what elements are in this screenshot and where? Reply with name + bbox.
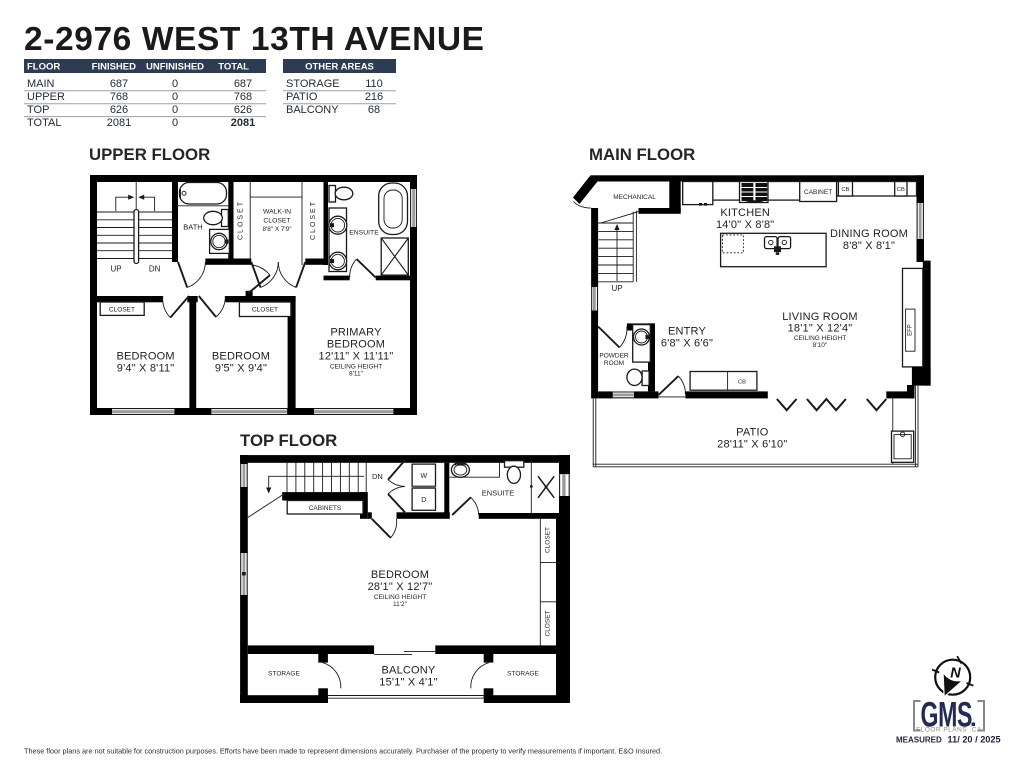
svg-text:9'4" X 8'11": 9'4" X 8'11" xyxy=(117,363,175,375)
svg-text:UPPER FLOOR: UPPER FLOOR xyxy=(89,145,210,164)
svg-text:6'8" X 6'6": 6'8" X 6'6" xyxy=(661,338,713,350)
svg-text:FLOOR: FLOOR xyxy=(27,62,60,73)
svg-text:CABINET: CABINET xyxy=(804,189,832,196)
svg-text:BEDROOM: BEDROOM xyxy=(212,351,270,363)
svg-text:DN: DN xyxy=(372,472,383,481)
svg-text:TOP: TOP xyxy=(27,104,49,116)
svg-text:8'11": 8'11" xyxy=(349,371,364,378)
svg-text:CLOSET: CLOSET xyxy=(263,218,290,225)
svg-text:TOP FLOOR: TOP FLOOR xyxy=(240,431,337,450)
svg-text:0: 0 xyxy=(172,117,178,129)
svg-text:PRIMARY: PRIMARY xyxy=(330,327,382,339)
svg-text:BEDROOM: BEDROOM xyxy=(327,339,385,351)
svg-text:BEDROOM: BEDROOM xyxy=(371,569,429,581)
svg-text:MEASURED: MEASURED xyxy=(896,736,942,745)
svg-text:9'5" X 9'4": 9'5" X 9'4" xyxy=(215,363,267,375)
svg-text:BALCONY: BALCONY xyxy=(382,665,436,677)
svg-text:EFP: EFP xyxy=(908,324,914,336)
svg-text:CB: CB xyxy=(897,187,905,193)
svg-text:110: 110 xyxy=(365,78,383,90)
svg-text:768: 768 xyxy=(234,91,252,103)
svg-text:ENSUITE: ENSUITE xyxy=(482,488,515,497)
svg-text:11'2": 11'2" xyxy=(393,601,408,608)
svg-text:W: W xyxy=(420,473,427,480)
svg-text:2-2976 WEST 13TH AVENUE: 2-2976 WEST 13TH AVENUE xyxy=(24,21,485,58)
svg-text:68: 68 xyxy=(368,104,380,116)
svg-text:CB: CB xyxy=(738,380,746,386)
svg-text:CLOSET: CLOSET xyxy=(252,307,278,314)
svg-text:FINISHED: FINISHED xyxy=(92,62,136,73)
svg-text:15'1" X 4'1": 15'1" X 4'1" xyxy=(379,677,437,689)
svg-text:ENSUITE: ENSUITE xyxy=(349,230,379,237)
svg-text:CEILING HEIGHT: CEILING HEIGHT xyxy=(330,364,382,371)
svg-text:8'10": 8'10" xyxy=(813,342,828,349)
svg-text:UP: UP xyxy=(110,265,121,274)
svg-text:PATIO: PATIO xyxy=(286,91,318,103)
svg-text:DN: DN xyxy=(149,265,161,274)
svg-text:BATH: BATH xyxy=(183,223,202,232)
svg-text:ENTRY: ENTRY xyxy=(668,326,707,338)
svg-text:2081: 2081 xyxy=(107,117,131,129)
svg-text:UNFINISHED: UNFINISHED xyxy=(146,62,204,73)
svg-text:11/ 20 / 2025: 11/ 20 / 2025 xyxy=(948,735,1001,745)
svg-text:CEILING HEIGHT: CEILING HEIGHT xyxy=(374,594,426,601)
svg-text:2081: 2081 xyxy=(231,117,255,129)
svg-text:14'0" X 8'8": 14'0" X 8'8" xyxy=(716,219,774,231)
svg-text:0: 0 xyxy=(172,91,178,103)
svg-text:MAIN FLOOR: MAIN FLOOR xyxy=(589,145,695,164)
svg-text:ROOM: ROOM xyxy=(604,360,624,367)
svg-text:0: 0 xyxy=(172,104,178,116)
svg-text:MAIN: MAIN xyxy=(27,78,55,90)
svg-text:216: 216 xyxy=(365,91,383,103)
svg-text:D: D xyxy=(421,497,426,504)
svg-text:0: 0 xyxy=(172,78,178,90)
svg-text:8'8" X 8'1": 8'8" X 8'1" xyxy=(843,240,895,252)
svg-text:PATIO: PATIO xyxy=(736,427,769,439)
svg-text:18'1" X 12'4": 18'1" X 12'4" xyxy=(788,323,853,335)
svg-text:768: 768 xyxy=(110,91,128,103)
svg-text:28'1" X 12'7": 28'1" X 12'7" xyxy=(368,581,433,593)
svg-text:BALCONY: BALCONY xyxy=(286,104,339,116)
svg-text:CABINETS: CABINETS xyxy=(309,505,342,512)
svg-text:CLOSET: CLOSET xyxy=(310,200,317,240)
svg-text:CB: CB xyxy=(841,187,849,193)
svg-text:626: 626 xyxy=(234,104,252,116)
svg-text:UP: UP xyxy=(611,284,622,293)
svg-text:687: 687 xyxy=(110,78,128,90)
svg-text:UPPER: UPPER xyxy=(27,91,65,103)
svg-text:POWDER: POWDER xyxy=(599,353,629,360)
svg-text:28'11" X 6'10": 28'11" X 6'10" xyxy=(717,439,787,451)
svg-text:OTHER AREAS: OTHER AREAS xyxy=(305,62,374,73)
svg-text:TOTAL: TOTAL xyxy=(218,62,249,73)
svg-text:MECHANICAL: MECHANICAL xyxy=(613,194,656,201)
svg-text:WALK-IN: WALK-IN xyxy=(263,209,291,216)
svg-text:687: 687 xyxy=(234,78,252,90)
svg-text:DINING ROOM: DINING ROOM xyxy=(830,228,908,240)
svg-text:CLOSET: CLOSET xyxy=(109,307,135,314)
svg-text:These floor plans are not suit: These floor plans are not suitable for c… xyxy=(24,747,662,756)
svg-text:STORAGE: STORAGE xyxy=(286,78,340,90)
svg-text:LIVING ROOM: LIVING ROOM xyxy=(782,311,858,323)
svg-text:STORAGE: STORAGE xyxy=(268,671,300,678)
svg-text:626: 626 xyxy=(110,104,128,116)
svg-text:TOTAL: TOTAL xyxy=(27,117,61,129)
svg-text:FLOOR PLANS .CA: FLOOR PLANS .CA xyxy=(916,726,982,733)
svg-text:STORAGE: STORAGE xyxy=(507,671,539,678)
svg-text:CLOSET: CLOSET xyxy=(238,200,245,240)
svg-text:CLOSET: CLOSET xyxy=(545,527,552,553)
svg-text:KITCHEN: KITCHEN xyxy=(720,207,770,219)
svg-text:8'8" X 7'9": 8'8" X 7'9" xyxy=(262,226,291,233)
svg-text:BEDROOM: BEDROOM xyxy=(116,351,174,363)
svg-text:CLOSET: CLOSET xyxy=(545,610,552,636)
svg-text:CEILING HEIGHT: CEILING HEIGHT xyxy=(794,335,846,342)
svg-text:12'11" X 11'11": 12'11" X 11'11" xyxy=(319,351,394,363)
